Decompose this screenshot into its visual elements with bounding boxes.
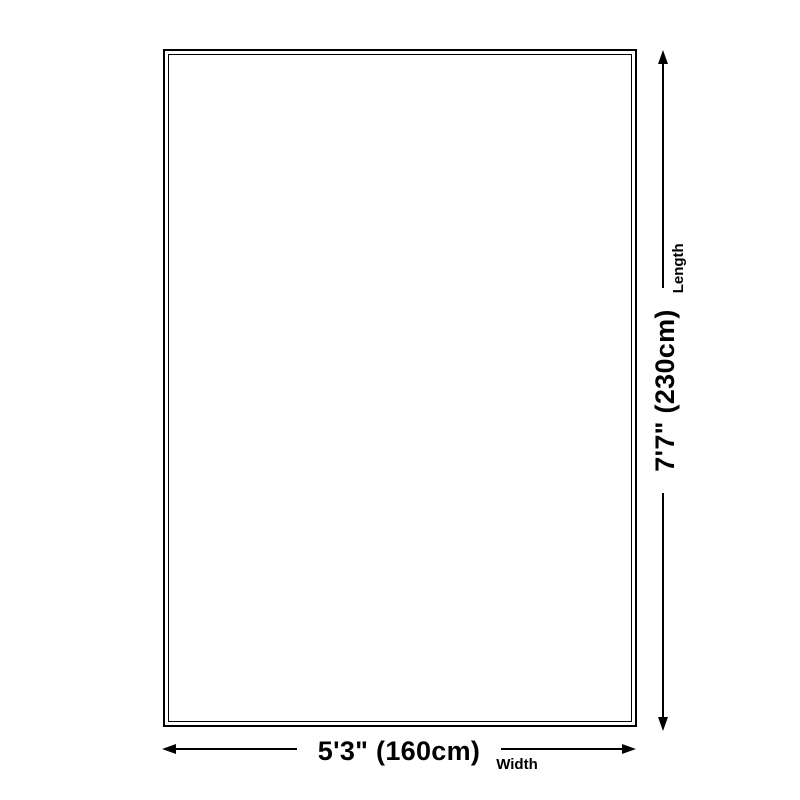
width-value: 5'3" (160cm) [318,736,480,767]
dimension-line [501,748,623,751]
size-diagram: 5'3" (160cm) Width 7'7" (230cm) Length [0,0,800,800]
rug-inner-border [168,54,632,722]
arrow-down-icon [658,717,668,731]
length-dimension: 7'7" (230cm) Length [641,50,685,731]
dimension-line [662,493,665,718]
width-arrow-right-segment: Width [501,744,636,754]
arrow-left-icon [162,744,176,754]
width-label: Width [496,756,538,773]
dimension-line [175,748,297,751]
length-value: 7'7" (230cm) [650,309,681,471]
arrow-right-icon [622,744,636,754]
length-arrow-bottom-segment [658,493,668,731]
width-dimension: 5'3" (160cm) Width [162,727,636,771]
arrow-up-icon [658,50,668,64]
width-arrow-left-segment [162,744,297,754]
length-arrow-top-segment: Length [658,50,668,288]
dimension-line [662,63,665,288]
length-label: Length [670,243,687,293]
rug-outline [163,49,637,727]
